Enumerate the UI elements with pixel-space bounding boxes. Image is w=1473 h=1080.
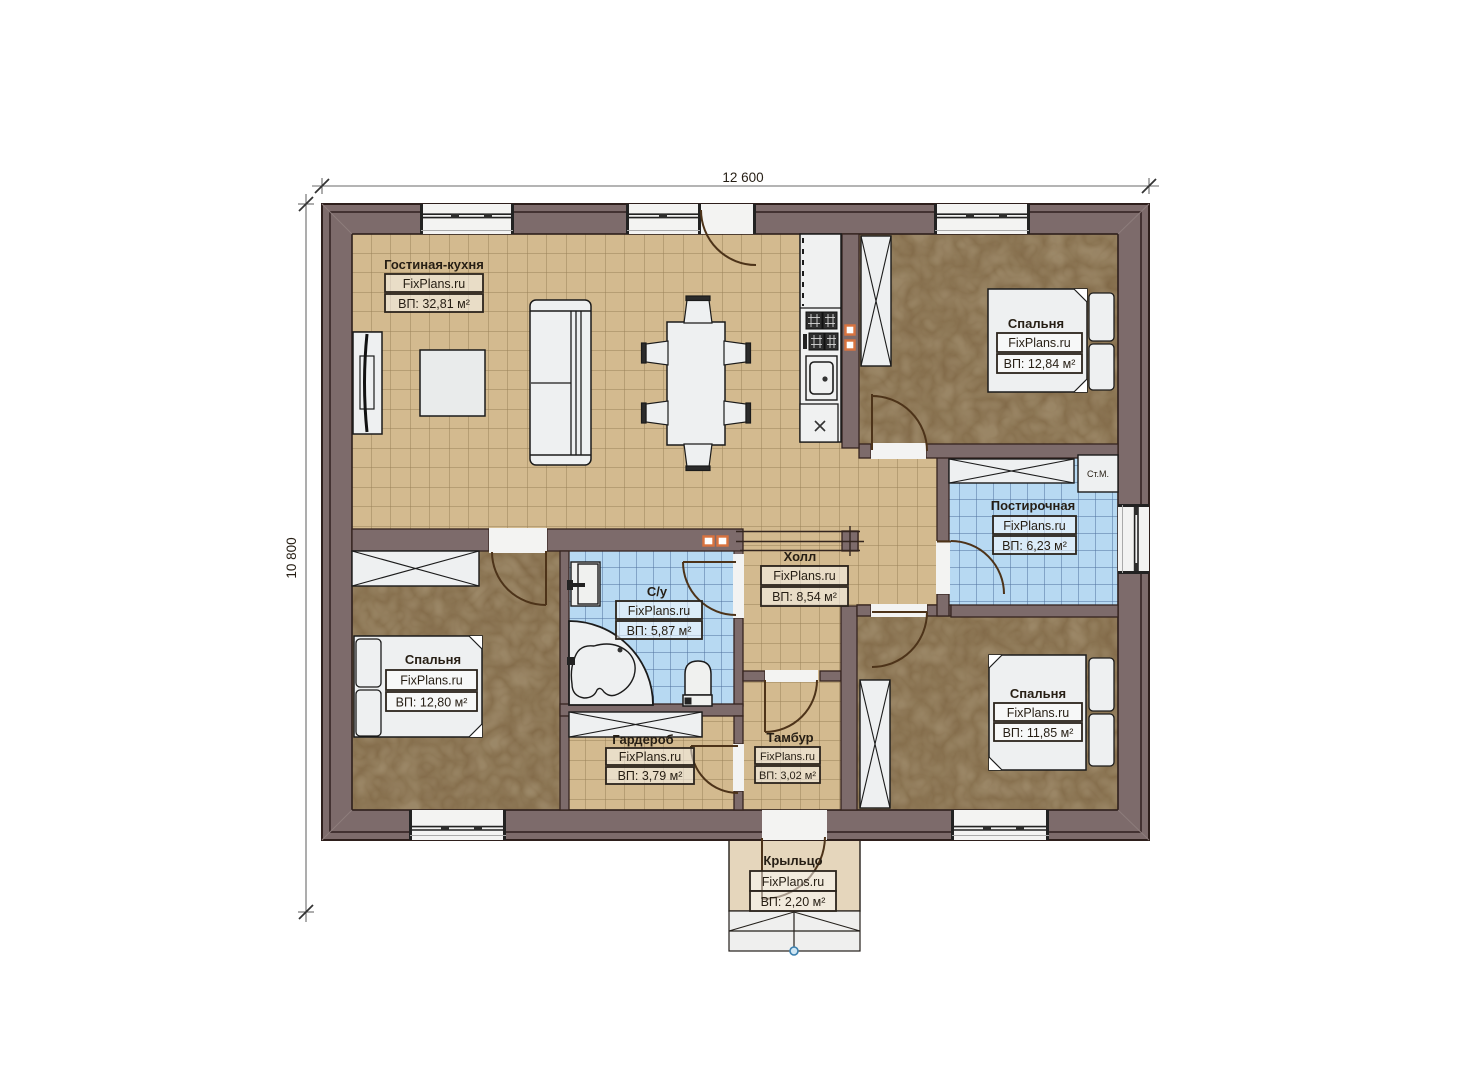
svg-text:12 600: 12 600 [722, 170, 763, 185]
svg-text:Холл: Холл [784, 549, 817, 564]
svg-text:ВП: 32,81 м²: ВП: 32,81 м² [398, 297, 470, 311]
svg-text:FixPlans.ru: FixPlans.ru [403, 277, 466, 291]
svg-text:10 800: 10 800 [284, 537, 299, 578]
svg-text:ВП: 12,84 м²: ВП: 12,84 м² [1004, 357, 1076, 371]
svg-text:FixPlans.ru: FixPlans.ru [619, 750, 682, 764]
svg-text:Спальня: Спальня [405, 652, 461, 667]
svg-text:Гостиная-кухня: Гостиная-кухня [384, 257, 484, 272]
svg-text:ВП: 3,79 м²: ВП: 3,79 м² [618, 769, 683, 783]
svg-text:FixPlans.ru: FixPlans.ru [760, 751, 815, 763]
svg-text:Спальня: Спальня [1008, 316, 1064, 331]
svg-text:Спальня: Спальня [1010, 686, 1066, 701]
svg-text:FixPlans.ru: FixPlans.ru [628, 604, 691, 618]
svg-text:Постирочная: Постирочная [991, 498, 1075, 513]
svg-text:FixPlans.ru: FixPlans.ru [1007, 706, 1070, 720]
svg-text:ВП: 11,85 м²: ВП: 11,85 м² [1003, 726, 1074, 740]
svg-text:Тамбур: Тамбур [766, 730, 813, 745]
svg-text:FixPlans.ru: FixPlans.ru [762, 875, 825, 889]
svg-text:Крыльцо: Крыльцо [763, 853, 822, 868]
svg-text:ВП: 6,23 м²: ВП: 6,23 м² [1002, 539, 1067, 553]
svg-text:ВП: 8,54 м²: ВП: 8,54 м² [772, 590, 837, 604]
svg-text:ВП: 2,20 м²: ВП: 2,20 м² [761, 895, 826, 909]
svg-text:Гардероб: Гардероб [612, 732, 673, 747]
svg-text:С/у: С/у [647, 584, 668, 599]
svg-text:FixPlans.ru: FixPlans.ru [1003, 519, 1066, 533]
svg-text:ВП: 3,02 м²: ВП: 3,02 м² [759, 770, 816, 782]
svg-text:FixPlans.ru: FixPlans.ru [773, 569, 836, 583]
svg-text:ВП: 12,80 м²: ВП: 12,80 м² [396, 696, 468, 710]
svg-text:ВП: 5,87 м²: ВП: 5,87 м² [627, 624, 692, 638]
svg-text:FixPlans.ru: FixPlans.ru [1008, 336, 1071, 350]
svg-text:Ст.М.: Ст.М. [1087, 469, 1109, 479]
svg-text:FixPlans.ru: FixPlans.ru [400, 674, 463, 688]
